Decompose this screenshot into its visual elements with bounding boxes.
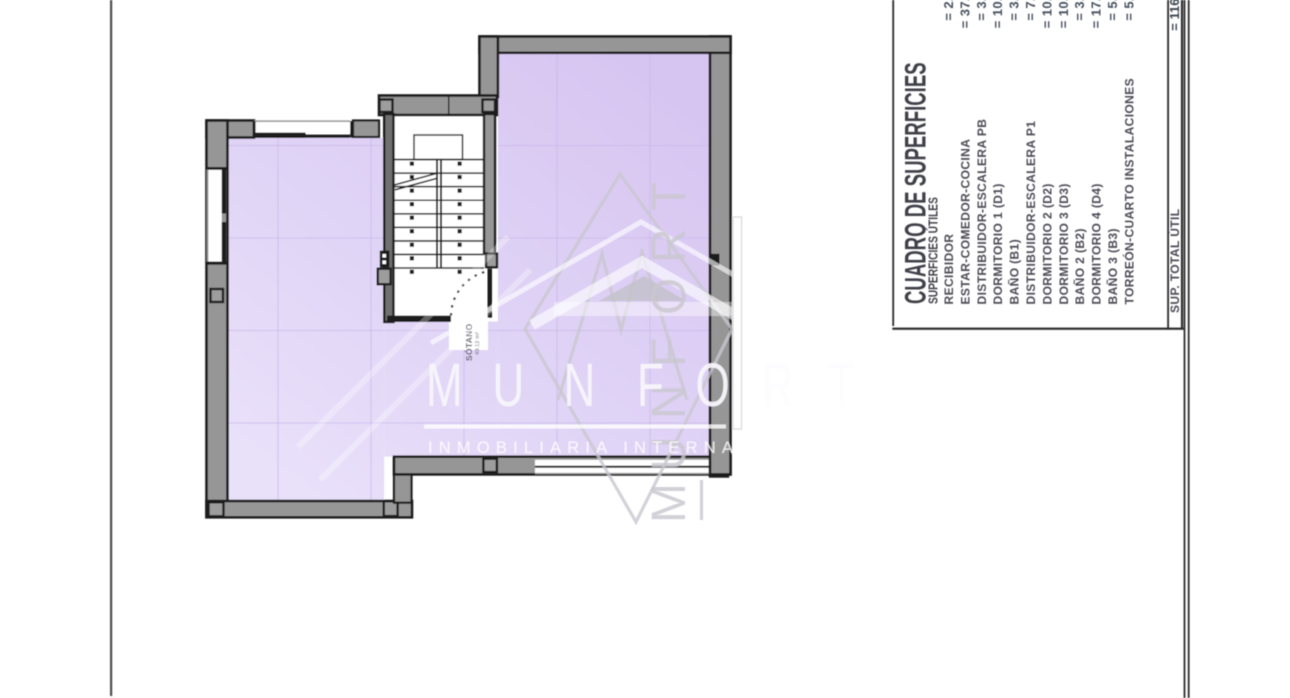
svg-text:= 5.40 m²: = 5.40 m²: [1105, 0, 1120, 21]
svg-text:R: R: [643, 228, 696, 263]
svg-text:INMOBILIARIA INTERNACIONAL: INMOBILIARIA INTERNACIONAL: [428, 439, 838, 457]
svg-text:= 116.80 m²: = 116.80 m²: [1167, 0, 1182, 31]
svg-text:RECIBIDOR: RECIBIDOR: [942, 234, 956, 305]
svg-text:= 17.20 m²: = 17.20 m²: [1089, 0, 1104, 28]
svg-text:DORMITORIO 4 (D4): DORMITORIO 4 (D4): [1090, 183, 1104, 304]
svg-text:= 3.15 m²: = 3.15 m²: [974, 0, 989, 21]
svg-text:O: O: [696, 352, 730, 420]
svg-text:= 10.75 m²: = 10.75 m²: [990, 0, 1005, 28]
svg-text:DORMITORIO 2 (D2): DORMITORIO 2 (D2): [1040, 183, 1054, 304]
svg-text:U: U: [493, 352, 525, 420]
svg-text:TORREÓN-CUARTO INSTALACIONES: TORREÓN-CUARTO INSTALACIONES: [1121, 78, 1136, 305]
svg-text:= 10.60 m²: = 10.60 m²: [1039, 0, 1054, 28]
svg-text:F: F: [637, 352, 664, 420]
svg-text:T: T: [828, 352, 855, 420]
svg-text:= 3.70 m²: = 3.70 m²: [1072, 0, 1087, 21]
svg-text:BAÑO (B1): BAÑO (B1): [1007, 239, 1022, 305]
svg-text:= 7.50 m²: = 7.50 m²: [1023, 0, 1038, 21]
svg-text:BAÑO 3 (B3): BAÑO 3 (B3): [1105, 228, 1120, 304]
svg-text:= 37.60 m²: = 37.60 m²: [957, 0, 972, 28]
svg-text:= 3.75 m²: = 3.75 m²: [1007, 0, 1022, 21]
svg-text:N: N: [564, 352, 596, 420]
svg-text:= 5.95 m²: = 5.95 m²: [1121, 0, 1136, 21]
svg-text:DISTRIBUIDOR-ESCALERA PB: DISTRIBUIDOR-ESCALERA PB: [975, 119, 989, 305]
svg-text:R: R: [762, 352, 794, 420]
svg-text:= 10.35 m²: = 10.35 m²: [1056, 0, 1071, 28]
svg-text:SUP. TOTAL ÚTIL: SUP. TOTAL ÚTIL: [1167, 209, 1182, 313]
svg-text:DORMITORIO 3 (D3): DORMITORIO 3 (D3): [1057, 183, 1071, 304]
svg-text:DISTRIBUIDOR-ESCALERA P1: DISTRIBUIDOR-ESCALERA P1: [1024, 121, 1038, 305]
svg-text:= 2.85 m²: = 2.85 m²: [941, 0, 956, 21]
svg-text:O: O: [643, 278, 696, 315]
svg-text:SUPERFICIES ÚTILES: SUPERFICIES ÚTILES: [927, 197, 941, 304]
svg-text:BAÑO 2 (B2): BAÑO 2 (B2): [1072, 228, 1087, 304]
svg-text:M: M: [643, 483, 696, 523]
svg-text:ESTAR-COMEDOR-COCINA: ESTAR-COMEDOR-COCINA: [958, 139, 972, 305]
svg-text:M: M: [426, 352, 463, 420]
svg-text:T: T: [643, 182, 696, 211]
svg-text:49.12 m²: 49.12 m²: [475, 332, 481, 355]
svg-text:DORMITORIO 1 (D1): DORMITORIO 1 (D1): [991, 183, 1005, 304]
